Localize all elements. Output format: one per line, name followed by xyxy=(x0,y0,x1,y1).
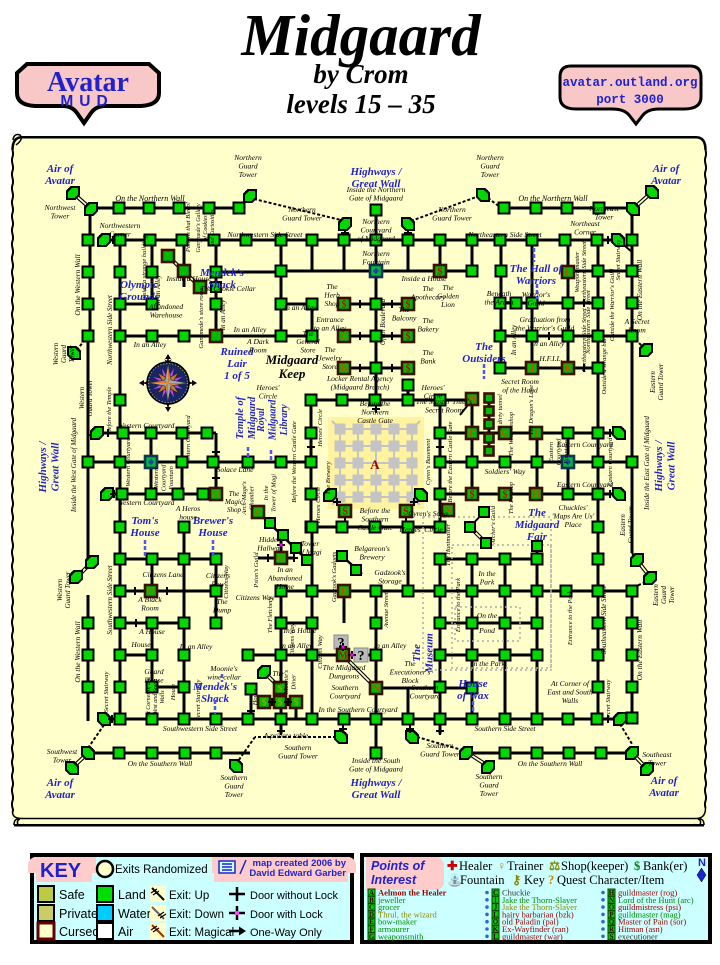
svg-text:Tower: Tower xyxy=(225,790,244,799)
svg-text:Heroes' Circle: Heroes' Circle xyxy=(317,409,324,448)
svg-text:Exit: Down: Exit: Down xyxy=(169,909,224,921)
svg-text:S: S xyxy=(610,933,614,941)
svg-text:The: The xyxy=(475,341,493,353)
svg-text:Land: Land xyxy=(118,888,146,902)
svg-text:West and South: West and South xyxy=(153,679,159,716)
svg-text:One-Way Only: One-Way Only xyxy=(250,927,322,939)
svg-text:M: M xyxy=(338,651,348,662)
svg-text:of Magi: of Magi xyxy=(298,548,322,557)
svg-text:Gate of Midgaard: Gate of Midgaard xyxy=(349,194,403,203)
svg-text:Citizens Way: Citizens Way xyxy=(223,565,230,599)
svg-text:The Fletchery: The Fletchery xyxy=(267,597,274,633)
svg-text:General: General xyxy=(296,338,320,346)
svg-text:Air: Air xyxy=(118,925,133,939)
svg-text:H.F.I.L.: H.F.I.L. xyxy=(538,354,562,363)
svg-text:The Dragon's Lane: The Dragon's Lane xyxy=(528,385,535,435)
svg-text:$: $ xyxy=(406,364,411,375)
svg-text:L: L xyxy=(565,268,572,279)
svg-text:J: J xyxy=(530,364,535,375)
svg-text:House: House xyxy=(130,640,151,649)
svg-text:Air of: Air of xyxy=(652,163,681,175)
svg-text:House: House xyxy=(197,527,227,539)
svg-text:The Brewery: The Brewery xyxy=(325,461,332,494)
svg-text:Great Wall: Great Wall xyxy=(352,789,402,801)
svg-text:Gate of Midgaard: Gate of Midgaard xyxy=(349,765,403,774)
svg-text:Private: Private xyxy=(59,907,98,921)
svg-text:Northwestern Side Street: Northwestern Side Street xyxy=(227,230,304,239)
svg-text:Park: Park xyxy=(479,578,495,587)
svg-text:Pond: Pond xyxy=(478,626,495,635)
svg-text:G: G xyxy=(369,933,375,941)
svg-text:of Cookies: of Cookies xyxy=(202,215,209,241)
svg-text:A private table: A private table xyxy=(263,731,309,740)
svg-text:Secret Stairway: Secret Stairway xyxy=(605,680,612,721)
svg-text:house: house xyxy=(179,513,197,522)
svg-text:Storage: Storage xyxy=(378,577,402,586)
svg-text:Outsiders: Outsiders xyxy=(462,353,505,365)
svg-text:wine cellar: wine cellar xyxy=(207,673,241,682)
svg-text:executioner: executioner xyxy=(618,931,658,941)
svg-text:The Weaponshop: The Weaponshop xyxy=(508,411,515,456)
svg-text:Inside the East Gate of Midgaa: Inside the East Gate of Midgaard xyxy=(643,416,651,511)
svg-text:Guard: Guard xyxy=(60,344,68,363)
svg-text:$: $ xyxy=(342,300,347,311)
svg-text:Before the Eastern Castle Gate: Before the Eastern Castle Gate xyxy=(447,421,454,502)
svg-text:Inside a strange building: Inside a strange building xyxy=(141,235,148,302)
svg-text:Secret Stairway: Secret Stairway xyxy=(195,680,202,721)
svg-text:S: S xyxy=(342,507,348,518)
svg-text:Eastern: Eastern xyxy=(548,442,555,463)
svg-text:Magic: Magic xyxy=(224,498,244,506)
svg-text:Southeastern Side Street: Southeastern Side Street xyxy=(600,585,608,654)
svg-text:On the Northern Wall: On the Northern Wall xyxy=(115,194,185,203)
svg-text:Guard: Guard xyxy=(660,585,668,604)
svg-text:The Petshop: The Petshop xyxy=(508,481,515,514)
svg-text:Western Courtyard: Western Courtyard xyxy=(118,421,175,430)
svg-text:Guard Tower: Guard Tower xyxy=(278,752,318,761)
svg-text:The Huntmaster: The Huntmaster xyxy=(445,523,452,566)
svg-text:Highways /: Highways / xyxy=(37,441,49,494)
svg-text:Guard Tower: Guard Tower xyxy=(64,571,72,608)
svg-text:On the Southern Wall: On the Southern Wall xyxy=(518,759,583,768)
svg-text:Castle Gate: Castle Gate xyxy=(357,416,393,425)
svg-text:Citizens Lane: Citizens Lane xyxy=(142,570,184,579)
svg-text:Western: Western xyxy=(56,578,64,601)
svg-text:Eastern Courtyard: Eastern Courtyard xyxy=(556,480,613,489)
svg-text:Tower: Tower xyxy=(648,759,667,768)
svg-text:Ganymede's store room: Ganymede's store room xyxy=(198,287,205,349)
svg-text:E: E xyxy=(341,587,348,598)
svg-text:Tower: Tower xyxy=(51,212,70,221)
svg-text:$: $ xyxy=(503,490,508,501)
svg-text:Psion's Guild: Psion's Guild xyxy=(253,552,260,589)
svg-text:Tower: Tower xyxy=(68,345,76,363)
svg-text:Lair: Lair xyxy=(226,358,247,370)
svg-text:of Midgaard: of Midgaard xyxy=(357,234,395,243)
svg-text:(Midgaard Branch): (Midgaard Branch) xyxy=(331,383,390,392)
svg-text:In the Park: In the Park xyxy=(470,659,505,668)
svg-text:Great Wall: Great Wall xyxy=(666,441,678,491)
svg-text:On the Eastern Wall: On the Eastern Wall xyxy=(635,260,644,321)
svg-text:Solace Lane: Solace Lane xyxy=(217,465,255,474)
svg-text:Courtyard: Courtyard xyxy=(161,464,168,492)
svg-text:In an Alley: In an Alley xyxy=(154,274,162,306)
svg-text:Home: Home xyxy=(275,582,295,591)
svg-text:In an Alley: In an Alley xyxy=(133,340,167,349)
svg-text:the Warrior's Guild: the Warrior's Guild xyxy=(516,324,575,333)
svg-text:L: L xyxy=(493,933,498,941)
svg-text:Avenue Street: Avenue Street xyxy=(383,592,390,629)
svg-text:At Corner of the: At Corner of the xyxy=(145,677,152,718)
svg-text:Guard Tower: Guard Tower xyxy=(627,506,635,543)
svg-text:$: $ xyxy=(262,698,267,709)
svg-text:Inside a House: Inside a House xyxy=(166,274,213,283)
svg-text:$: $ xyxy=(470,490,475,501)
svg-text:Heroes Circle: Heroes Circle xyxy=(315,487,322,524)
svg-text:In an Alley: In an Alley xyxy=(531,339,565,348)
svg-text:N: N xyxy=(698,857,706,869)
svg-text:Water: Water xyxy=(118,907,151,921)
svg-text:Southern Side Street: Southern Side Street xyxy=(475,724,537,733)
svg-text:Western: Western xyxy=(153,468,160,489)
svg-text:Great Wall: Great Wall xyxy=(50,442,62,492)
svg-text:House: House xyxy=(129,527,159,539)
svg-text:Diner: Diner xyxy=(291,674,298,691)
svg-text:by Crom: by Crom xyxy=(313,59,408,89)
svg-text:Western Courtyard: Western Courtyard xyxy=(185,415,192,465)
svg-text:House: House xyxy=(170,684,177,702)
svg-text:N: N xyxy=(372,684,380,695)
svg-text:Temple of: Temple of xyxy=(235,395,246,439)
svg-text:O: O xyxy=(277,554,285,565)
svg-text:Olympic: Olympic xyxy=(120,279,158,291)
svg-text:Before the Temple: Before the Temple xyxy=(106,386,113,433)
svg-text:B: B xyxy=(341,364,348,375)
svg-text:H: H xyxy=(532,490,540,501)
svg-text:Tower: Tower xyxy=(480,789,499,798)
svg-text:On the Southern Wall: On the Southern Wall xyxy=(128,759,193,768)
svg-text:On the Northern Wall: On the Northern Wall xyxy=(518,194,588,203)
svg-text:Inside a House: Inside a House xyxy=(401,274,448,283)
svg-text:Soldiers' Way: Soldiers' Way xyxy=(485,467,526,476)
svg-text:Highways /: Highways / xyxy=(653,440,665,493)
svg-text:On the Eastern Wall: On the Eastern Wall xyxy=(635,620,644,681)
svg-text:✚Healer♀Trainer⚖Shop(keeper)$B: ✚Healer♀Trainer⚖Shop(keeper)$Bank(er) xyxy=(447,859,687,873)
svg-text:Keep: Keep xyxy=(278,366,306,381)
svg-text:P: P xyxy=(255,508,261,519)
svg-text:Inside the West Gate of Midgaa: Inside the West Gate of Midgaard xyxy=(70,417,78,513)
svg-text:of Wax: of Wax xyxy=(457,690,489,702)
svg-text:Courtyard: Courtyard xyxy=(556,438,563,466)
svg-text:MUD: MUD xyxy=(60,93,113,110)
svg-text:In an Alley: In an Alley xyxy=(279,641,313,650)
svg-text:Tower: Tower xyxy=(481,170,500,179)
svg-text:levels 15 – 35: levels 15 – 35 xyxy=(286,89,435,119)
svg-text:Guard Tower: Guard Tower xyxy=(420,750,460,759)
svg-text:Safe: Safe xyxy=(59,888,85,902)
svg-text:Western Courtyard: Western Courtyard xyxy=(118,498,175,507)
svg-text:Western Courtyard: Western Courtyard xyxy=(125,437,132,487)
svg-text:Balcony: Balcony xyxy=(392,314,417,323)
svg-text:Chamber: Chamber xyxy=(249,485,256,510)
svg-text:F: F xyxy=(469,429,475,440)
svg-text:Store: Store xyxy=(322,362,338,371)
svg-text:Exit: Magical: Exit: Magical xyxy=(169,927,234,939)
svg-text:Eastern: Eastern xyxy=(649,371,657,394)
svg-text:Shop: Shop xyxy=(227,506,242,514)
svg-text:Avatar: Avatar xyxy=(44,175,75,187)
svg-text:Avatar: Avatar xyxy=(648,787,679,799)
svg-text:Cursed: Cursed xyxy=(59,925,99,939)
svg-text:Guard Tower: Guard Tower xyxy=(432,214,472,223)
svg-text:?: ? xyxy=(358,649,365,664)
svg-text:The: The xyxy=(229,490,240,498)
svg-text:Door without Lock: Door without Lock xyxy=(250,890,339,902)
svg-text:Guard Tower: Guard Tower xyxy=(282,214,322,223)
svg-text:Brewer's: Brewer's xyxy=(192,515,233,527)
svg-text:Courtyard: Courtyard xyxy=(410,692,441,701)
svg-text:Interest: Interest xyxy=(371,873,417,887)
svg-text:Ganymede's Gallery: Ganymede's Gallery xyxy=(196,203,202,252)
svg-text:Air of: Air of xyxy=(46,777,75,789)
svg-text:The: The xyxy=(303,330,315,338)
svg-text:K: K xyxy=(564,364,572,375)
svg-text:In an Alley: In an Alley xyxy=(373,641,407,650)
svg-text:guildmaster (war): guildmaster (war) xyxy=(502,931,563,941)
svg-text:A: A xyxy=(370,457,380,472)
svg-text:$: $ xyxy=(406,332,411,343)
svg-text:The: The xyxy=(528,507,546,519)
svg-text:Secret Stairway: Secret Stairway xyxy=(103,672,110,713)
svg-text:Secret Stairway: Secret Stairway xyxy=(615,240,622,281)
svg-text:Cyren's Basement: Cyren's Basement xyxy=(425,439,432,486)
svg-text:avatar.outland.org: avatar.outland.org xyxy=(562,76,697,90)
svg-text:Southwestern Side Street: Southwestern Side Street xyxy=(163,724,238,733)
svg-text:Fountain: Fountain xyxy=(361,258,390,267)
svg-text:In the: In the xyxy=(263,485,270,501)
svg-text:Warriors: Warriors xyxy=(516,275,556,287)
svg-text:Castle Gate: Castle Gate xyxy=(357,523,393,532)
svg-text:Northwestern Side Street: Northwestern Side Street xyxy=(106,294,114,366)
svg-text:Eastern: Eastern xyxy=(619,514,627,537)
svg-text:Guard Tower: Guard Tower xyxy=(86,379,94,416)
svg-text:Guard Tower: Guard Tower xyxy=(657,363,665,400)
svg-text:Eastern: Eastern xyxy=(652,584,660,607)
svg-text:In an Alley: In an Alley xyxy=(179,642,213,651)
svg-text:Room: Room xyxy=(140,604,159,613)
svg-text:C: C xyxy=(340,332,347,343)
svg-text:David Edward Garber: David Edward Garber xyxy=(249,868,346,879)
svg-text:Walls: Walls xyxy=(562,696,578,705)
svg-text:Tom's: Tom's xyxy=(131,515,158,527)
svg-text:$: $ xyxy=(294,698,299,709)
svg-text:weaponsmith: weaponsmith xyxy=(378,931,424,941)
svg-text:Courtyard: Courtyard xyxy=(330,692,361,701)
svg-text:Corner: Corner xyxy=(109,230,131,239)
svg-text:Dungeons: Dungeons xyxy=(328,672,359,681)
svg-text:Air of: Air of xyxy=(650,775,679,787)
svg-text:In an Alley: In an Alley xyxy=(510,324,518,356)
svg-text:Exits Randomized: Exits Randomized xyxy=(115,864,208,876)
svg-text:Highways /: Highways / xyxy=(349,166,402,178)
svg-text:Circle: Circle xyxy=(259,392,278,401)
svg-text:Room: Room xyxy=(627,326,646,335)
svg-text:KEY: KEY xyxy=(40,860,82,882)
svg-text:The Cookie Cellar: The Cookie Cellar xyxy=(200,284,255,293)
svg-text:The Hall of: The Hall of xyxy=(510,263,564,275)
svg-text:A dirty tunnel: A dirty tunnel xyxy=(497,394,504,431)
svg-text:Air of: Air of xyxy=(46,163,75,175)
svg-text:Tower of Magi: Tower of Magi xyxy=(271,474,278,512)
svg-text:Walls: Walls xyxy=(160,690,166,704)
svg-text:Potions that Bleep!: Potions that Bleep! xyxy=(185,202,192,253)
svg-text:Western: Western xyxy=(78,386,86,409)
svg-text:Warehouse: Warehouse xyxy=(150,311,183,320)
svg-text:Outside a strange bar: Outside a strange bar xyxy=(601,337,608,394)
svg-text:Highways /: Highways / xyxy=(349,777,402,789)
svg-text:In an Alley: In an Alley xyxy=(219,299,227,331)
svg-text:Moonie's: Moonie's xyxy=(283,670,290,695)
svg-text:Corner: Corner xyxy=(574,228,596,237)
svg-text:In a House: In a House xyxy=(283,626,318,635)
svg-text:port 3000: port 3000 xyxy=(596,93,664,107)
svg-text:and Curiosities: and Curiosities xyxy=(210,209,216,247)
svg-text:Archer's Guild: Archer's Guild xyxy=(490,505,497,545)
svg-text:Bank: Bank xyxy=(420,357,436,366)
svg-text:House: House xyxy=(457,678,487,690)
svg-text:Fair: Fair xyxy=(526,531,548,543)
svg-text:Southwestern Side Street: Southwestern Side Street xyxy=(106,564,114,634)
svg-text:In the Southern Courtyard: In the Southern Courtyard xyxy=(317,705,397,714)
svg-text:Brewery: Brewery xyxy=(359,553,385,562)
svg-text:Library: Library xyxy=(279,404,290,437)
svg-text:to an Alley: to an Alley xyxy=(314,324,347,333)
svg-text:In an Alley: In an Alley xyxy=(283,303,317,312)
svg-text:1 of 5: 1 of 5 xyxy=(224,370,250,382)
svg-text:Gadzook's Gadgets: Gadzook's Gadgets xyxy=(331,551,338,602)
svg-text:Western: Western xyxy=(52,342,60,365)
svg-text:Tower: Tower xyxy=(53,756,72,765)
svg-text:Entrance to the Park: Entrance to the Park xyxy=(455,578,462,633)
svg-text:Weaponsmaster: Weaponsmaster xyxy=(574,251,581,292)
svg-text:Tower: Tower xyxy=(595,213,614,222)
svg-text:Guild: Guild xyxy=(527,299,544,308)
svg-text:On the: On the xyxy=(477,611,498,620)
svg-text:Hallway: Hallway xyxy=(256,544,283,553)
svg-text:Room: Room xyxy=(248,346,267,355)
svg-text:Shop: Shop xyxy=(325,299,340,308)
svg-text:Door with Lock: Door with Lock xyxy=(250,909,323,921)
svg-text:Before the Western Castle Gate: Before the Western Castle Gate xyxy=(291,421,298,503)
svg-text:Northeastern Side Street: Northeastern Side Street xyxy=(467,230,542,239)
svg-text:Place: Place xyxy=(563,520,582,529)
svg-text:Avatar: Avatar xyxy=(650,175,681,187)
svg-text:Avatar: Avatar xyxy=(44,789,75,801)
svg-text:Fountain: Fountain xyxy=(168,466,175,491)
svg-text:$: $ xyxy=(278,698,283,709)
svg-text:A House: A House xyxy=(138,627,165,636)
svg-text:Royal: Royal xyxy=(256,408,267,433)
svg-text:Points of: Points of xyxy=(371,859,426,873)
svg-text:Store: Store xyxy=(301,346,317,354)
svg-text:Midgaard: Midgaard xyxy=(514,519,560,531)
svg-text:Heroes' Circle: Heroes' Circle xyxy=(398,525,443,534)
svg-text:On the Western Wall: On the Western Wall xyxy=(73,621,82,682)
svg-text:Exit: Up: Exit: Up xyxy=(169,890,209,902)
svg-text:Ofcol Boulevard: Ofcol Boulevard xyxy=(379,298,387,345)
svg-text:Eastern Courtyard: Eastern Courtyard xyxy=(607,437,614,487)
svg-text:bar: bar xyxy=(273,678,284,687)
svg-text:O: O xyxy=(212,490,220,501)
svg-text:the Arena: the Arena xyxy=(485,298,514,307)
svg-text:Secret Room: Secret Room xyxy=(425,406,463,415)
svg-text:Tower: Tower xyxy=(239,170,258,179)
svg-text:Lion: Lion xyxy=(440,300,455,309)
svg-text:Cyren's Song: Cyren's Song xyxy=(408,509,448,518)
svg-text:Northeastern Side Street: Northeastern Side Street xyxy=(585,290,592,355)
svg-text:Dump: Dump xyxy=(212,606,232,615)
svg-text:On the Western Wall: On the Western Wall xyxy=(73,254,82,315)
svg-text:Fountain: Fountain xyxy=(563,440,570,465)
svg-text:Midgaard: Midgaard xyxy=(268,399,279,442)
svg-text:House: House xyxy=(252,689,259,707)
svg-text:Tower: Tower xyxy=(668,586,676,604)
svg-text:In an Alley: In an Alley xyxy=(233,325,267,334)
svg-text:Entrance to the Park: Entrance to the Park xyxy=(567,591,574,646)
svg-text:Bakery: Bakery xyxy=(417,325,439,334)
